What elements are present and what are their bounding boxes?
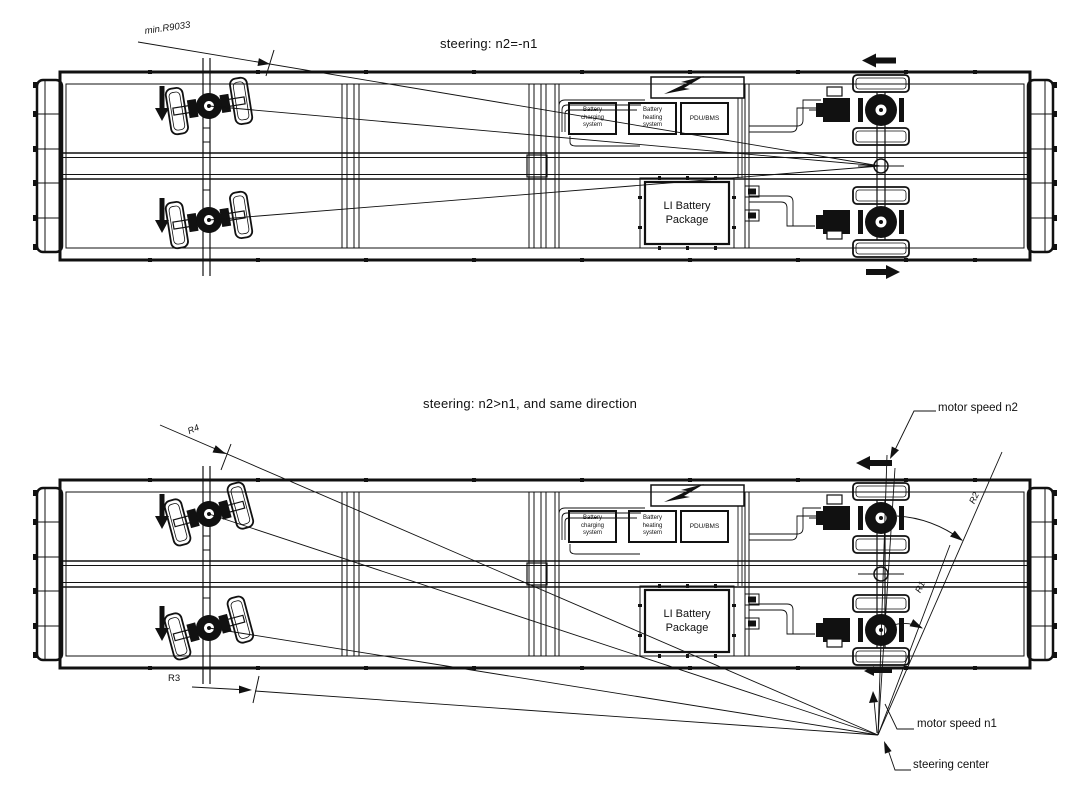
r3-label: R3 — [168, 673, 180, 684]
bottom-annotations — [160, 411, 1002, 770]
top-vehicle — [33, 58, 1057, 276]
steering-center-label: steering center — [913, 759, 989, 773]
motor-speed-n1-label: motor speed n1 — [917, 718, 997, 732]
li-battery-label: LI Battery Package — [645, 182, 729, 244]
battery-heating-label: Battery heating system — [629, 511, 676, 542]
motor-n2-arrow-left — [862, 54, 896, 68]
battery-charging-label: Battery charging system — [569, 103, 616, 134]
battery-charging-label: Battery charging system — [569, 511, 616, 542]
top-annotations — [138, 42, 900, 279]
li-battery-label: LI Battery Package — [645, 590, 729, 652]
battery-heating-label: Battery heating system — [629, 103, 676, 134]
top-diagram-title: steering: n2=-n1 — [440, 36, 538, 52]
bottom-diagram-title: steering: n2>n1, and same direction — [423, 396, 637, 412]
steering-center-leader — [886, 744, 911, 770]
radius-arrowhead — [258, 58, 271, 66]
pdu-bms-label: PDU/BMS — [681, 103, 728, 134]
r3-radius-line — [255, 691, 878, 735]
motor-speed-n2-leader — [892, 411, 936, 456]
r2-radius-line — [878, 452, 1002, 735]
r4-radius-line — [160, 425, 878, 735]
motor-n1-arrow-right — [866, 265, 900, 279]
motor-speed-n1-leader — [885, 704, 914, 729]
pdu-bms-label: PDU/BMS — [681, 511, 728, 542]
motor-speed-n2-label: motor speed n2 — [938, 402, 1018, 416]
drawing-canvas: steering: n2=-n1 min.R9033 Battery charg… — [0, 0, 1080, 795]
